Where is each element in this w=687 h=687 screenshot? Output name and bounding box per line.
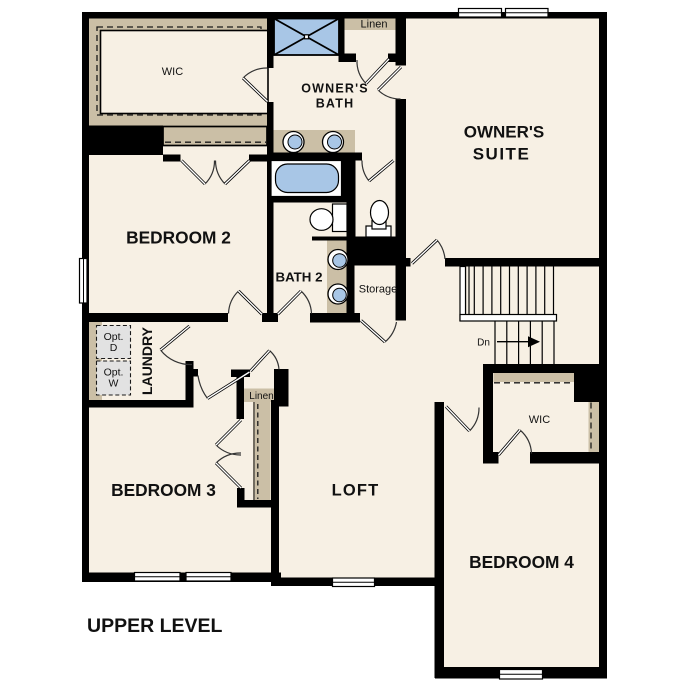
svg-text:BEDROOM 2: BEDROOM 2	[126, 228, 231, 248]
svg-text:OWNER'S: OWNER'S	[464, 122, 545, 141]
svg-text:LAUNDRY: LAUNDRY	[139, 326, 155, 395]
svg-text:W: W	[109, 378, 119, 390]
svg-text:UPPER LEVEL: UPPER LEVEL	[87, 615, 223, 637]
svg-text:BEDROOM 3: BEDROOM 3	[111, 480, 216, 500]
svg-text:WIC: WIC	[162, 66, 183, 78]
svg-text:OWNER'S: OWNER'S	[301, 82, 369, 96]
svg-text:Linen: Linen	[361, 18, 388, 30]
svg-text:D: D	[110, 342, 118, 354]
svg-text:Storage: Storage	[359, 283, 398, 295]
svg-text:WIC: WIC	[529, 414, 550, 426]
svg-text:BATH: BATH	[316, 97, 355, 111]
svg-text:SUITE: SUITE	[473, 144, 531, 163]
svg-text:LOFT: LOFT	[332, 482, 380, 500]
svg-text:Linen: Linen	[249, 391, 273, 402]
svg-text:BEDROOM 4: BEDROOM 4	[469, 552, 574, 572]
svg-text:Dn: Dn	[477, 338, 490, 349]
svg-text:BATH 2: BATH 2	[275, 269, 322, 284]
